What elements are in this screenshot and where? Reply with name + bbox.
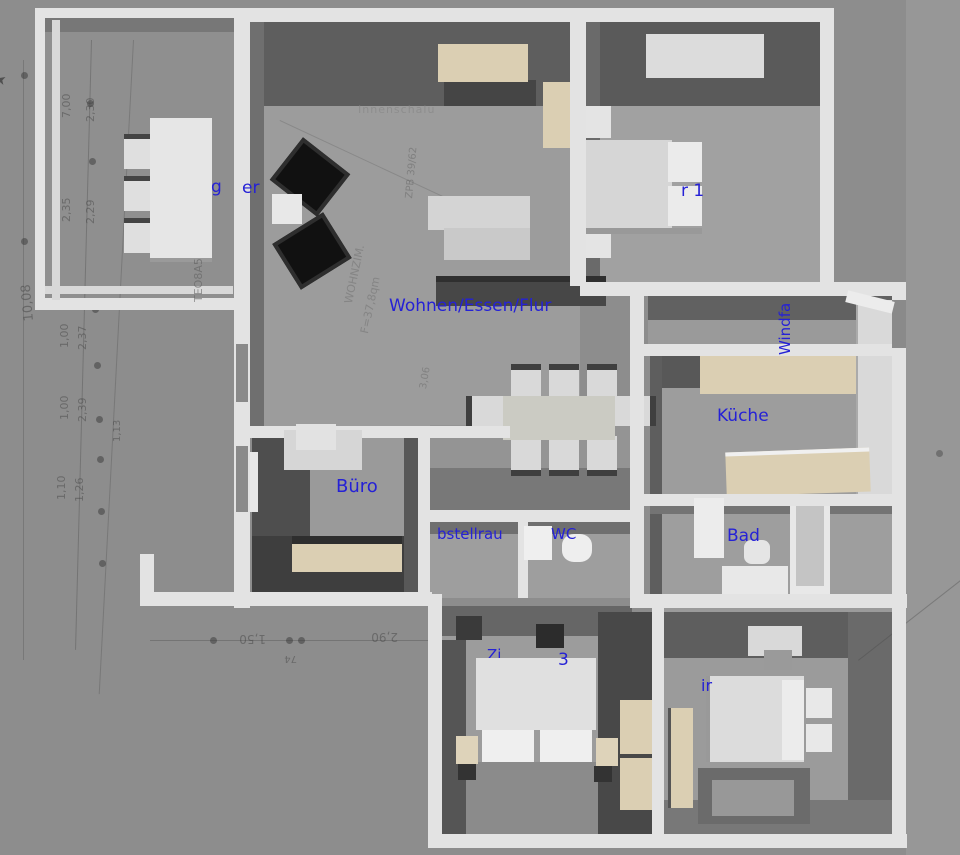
bath-vanity [722, 566, 788, 594]
pencil-dim: 74 [284, 653, 297, 664]
wall-bedroom3-left [428, 594, 442, 848]
conservatory-chair [124, 176, 150, 211]
label-bedroom3-fragment-b: 3 [558, 650, 569, 670]
sofa-element [428, 196, 530, 230]
bath-door-leaf [694, 498, 724, 558]
kitchen-left-wall-face [650, 348, 662, 598]
background-right-strip [906, 0, 960, 855]
wall-left-stub [140, 554, 154, 606]
conservatory-frame-top [35, 8, 240, 18]
dining-chair [587, 436, 617, 476]
bathtub-inner [796, 506, 824, 586]
bedroom3-pillow [540, 730, 592, 762]
dim-dot [96, 416, 103, 423]
label-bedroom2-fragment: ir [701, 676, 712, 695]
dim-dot [87, 100, 94, 107]
entry-door-opening [892, 300, 906, 348]
label-vestibule-fragment: Windfa [776, 283, 794, 355]
wall-bottom-outer [428, 834, 907, 848]
bedroom1-bed [584, 140, 672, 228]
label-conservatory-fragment-b: g [211, 177, 222, 197]
wall-top-outer [240, 8, 834, 22]
bedroom3-nightstand [456, 736, 478, 764]
dim-line-left [23, 60, 24, 660]
dim-dot [21, 72, 28, 79]
beige-sideboard [438, 44, 528, 82]
dim-dot [94, 362, 101, 369]
wc-door-leaf [524, 526, 552, 560]
label-wc: WC [551, 525, 576, 543]
pencil-wall-text: TEO8A5 [192, 258, 205, 302]
label-living-room: Wohnen/Essen/Flur [389, 296, 551, 316]
sideboard-shadow [444, 80, 536, 106]
conservatory-chair [124, 134, 150, 169]
wall-office-top [240, 426, 510, 438]
label-office: Büro [336, 476, 378, 497]
conservatory-chair [124, 218, 150, 253]
arrow-mark: ➤ [0, 71, 8, 88]
office-door-leaf [250, 452, 258, 512]
bedroom2-wardrobe [668, 708, 693, 808]
bedroom2-nightstand [806, 724, 832, 752]
wall-storage-cap [428, 510, 634, 522]
bedroom1-nightstand [583, 106, 611, 138]
living-wall-cabinet [296, 424, 336, 450]
door-opening-hall [236, 344, 248, 402]
wall-bottom-left [140, 592, 432, 606]
pencil-note: Innenschalu [358, 103, 435, 116]
bedroom3-nightstand [596, 738, 618, 766]
sofa-element [444, 228, 530, 260]
dining-chair [466, 396, 508, 426]
dim-dot [89, 158, 96, 165]
dining-chair [549, 436, 579, 476]
bedroom1-pillow [668, 142, 702, 182]
dim-dot [286, 637, 293, 644]
pencil-dim: 7,00 [60, 94, 73, 119]
conservatory-inner-frame-left [52, 20, 60, 300]
pencil-dim: 1,00 [58, 324, 71, 349]
dim-dot [98, 508, 105, 515]
pencil-dim: 1,10 [55, 476, 68, 501]
bedroom2-chair [764, 650, 792, 670]
label-bedroom1-fragment: r 1 [681, 181, 704, 201]
bedroom3-dark-corner [458, 764, 476, 780]
office-sideboard [292, 544, 402, 572]
wall-bathroom-top [644, 494, 894, 506]
wall-right-upper [820, 8, 834, 296]
door-opening-office [236, 446, 248, 512]
dining-chair [511, 436, 541, 476]
label-bathroom: Bad [727, 526, 760, 546]
bedroom3-bed [476, 658, 596, 730]
wall-corridor-right [630, 284, 644, 608]
label-storage-fragment: bstellrau [437, 525, 503, 543]
wall-right-outer [892, 290, 906, 848]
bedroom3-dark-corner [594, 766, 612, 782]
pencil-dim: 1,50 [239, 632, 266, 646]
wardrobe-beige-door [620, 758, 652, 810]
bedroom3-chair [536, 624, 564, 648]
wall-kitchen-top [644, 344, 894, 356]
dim-dot [99, 560, 106, 567]
bedroom3-dark-item [456, 616, 482, 640]
bedroom2-nightstand [806, 688, 832, 718]
living-left-wall-face [250, 20, 264, 428]
label-conservatory-fragment-c: er [242, 178, 259, 198]
side-table [272, 194, 302, 224]
bedroom2-pillow [782, 680, 804, 760]
bedroom1-bed-frame [584, 228, 702, 234]
dim-dot [210, 637, 217, 644]
pencil-dim: 2,90 [371, 630, 398, 644]
dim-dot [21, 238, 28, 245]
kitchen-counter [700, 356, 862, 394]
bedroom2-rug-inner [712, 780, 794, 816]
bedroom3-pillow [482, 730, 534, 762]
conservatory-top-face [43, 16, 240, 32]
kitchen-island [725, 448, 870, 497]
label-kitchen: Küche [717, 406, 769, 426]
pencil-dim: 1,00 [58, 396, 71, 421]
conservatory-frame-left [35, 8, 45, 310]
bedroom1-dresser [646, 34, 764, 78]
conservatory-table [150, 118, 212, 262]
conservatory-frame-bottom [35, 298, 240, 310]
wall-bedroom2-left [652, 606, 664, 836]
dining-table [503, 396, 615, 440]
wall-bathroom-bottom [630, 594, 907, 608]
floorplan-3d-view[interactable]: Innenschalu 10,08 7,00 2,30 2,35 2,29 1,… [0, 0, 960, 855]
pencil-dim: 2,35 [60, 198, 73, 223]
dim-dot [298, 637, 305, 644]
wall-living-bedroom1 [570, 20, 586, 286]
bedroom3-bed-frame [476, 762, 596, 770]
wardrobe-beige-door [620, 700, 652, 754]
dim-dot [97, 456, 104, 463]
dim-dot [936, 450, 943, 457]
